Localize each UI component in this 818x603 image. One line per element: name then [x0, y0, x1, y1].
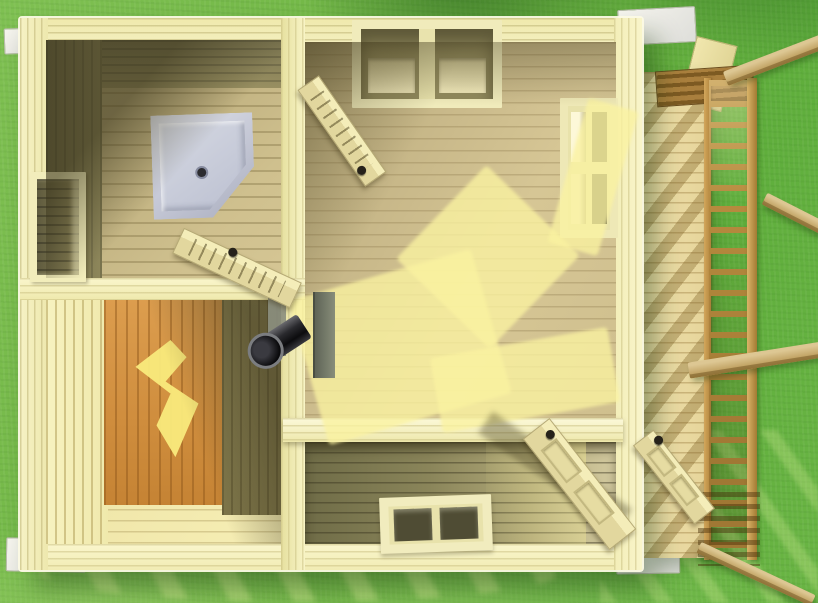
sauna-inner-wall-left	[46, 300, 108, 544]
wall-bottom	[20, 544, 642, 570]
sun-spot	[132, 340, 202, 462]
window-pane	[439, 507, 479, 540]
window-pane	[393, 508, 433, 541]
window-left-opening	[30, 172, 86, 282]
render-canvas	[0, 0, 818, 603]
window-top-opening	[352, 20, 502, 108]
sauna-room	[46, 300, 281, 544]
railing-rungs	[709, 80, 748, 560]
shower-tray	[150, 112, 256, 219]
wall-right	[614, 18, 642, 570]
window-pane	[439, 58, 487, 93]
window-mullion	[419, 29, 435, 99]
window-pane	[368, 58, 416, 93]
porch-railing	[704, 78, 758, 560]
building-shell	[20, 18, 642, 570]
railing-outer-stile	[747, 78, 757, 560]
shower-tray-basin	[158, 121, 247, 212]
sauna-paneling-wall	[104, 300, 224, 505]
window-bottom-opening	[379, 494, 493, 554]
door-handle-icon	[355, 164, 368, 177]
heat-shield-plate	[313, 292, 335, 378]
